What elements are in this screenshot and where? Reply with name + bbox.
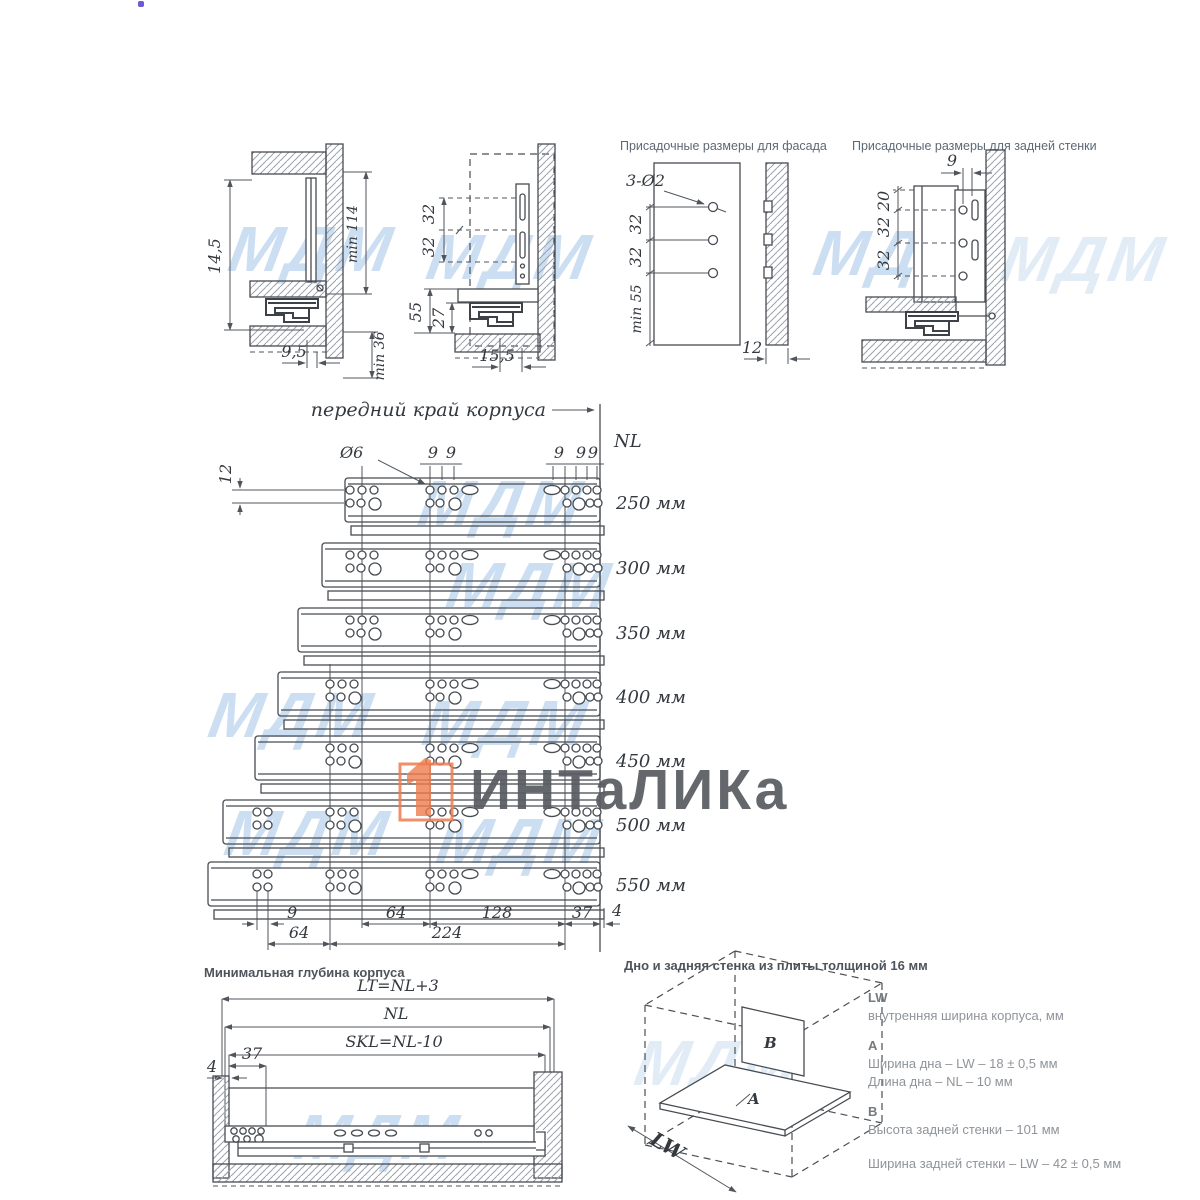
- dim-9: 9: [446, 443, 456, 462]
- dim-dia6: Ø6: [339, 443, 363, 462]
- marker-b: B: [763, 1034, 777, 1052]
- drawing-sheet: МДМ МДМ МДМ МДМ МДМ МДМ МДМ МДМ МДМ МДМ …: [0, 0, 1200, 1200]
- slide-row-350: 350 мм: [298, 608, 686, 665]
- dim-55: 55: [406, 302, 425, 322]
- dim-32: 32: [626, 214, 645, 234]
- dim-32: 32: [626, 247, 645, 267]
- slide-length-label: 550 мм: [616, 875, 686, 896]
- slide-length-diagram: передний край корпуса NL Ø6 9 9 9 9 9: [208, 399, 686, 952]
- dim-32: 32: [874, 217, 893, 237]
- slide-row-300: 300 мм: [322, 543, 686, 600]
- panel-facade-drilling: Присадочные размеры для фасада 3-Ø2 32 3…: [620, 139, 827, 364]
- dim-9: 9: [428, 443, 438, 462]
- slide-length-label: 350 мм: [616, 623, 686, 644]
- dim-37: 37: [242, 1044, 263, 1063]
- panel-title: Присадочные размеры для задней стенки: [852, 139, 1097, 153]
- note-line: Высота задней стенки – 101 мм: [868, 1122, 1060, 1137]
- dim-15-5: 15,5: [479, 346, 515, 365]
- dim-lt: LT=NL+3: [356, 976, 439, 995]
- dim-9: 9: [554, 443, 564, 462]
- dim-14-5: 14,5: [205, 238, 224, 274]
- slide-row-400: 400 мм: [278, 672, 686, 729]
- dim-9-5: 9,5: [281, 342, 306, 361]
- dim-9: 9: [576, 443, 586, 462]
- leader-3-d2: 3-Ø2: [626, 171, 665, 190]
- note-head-a: A: [868, 1038, 878, 1053]
- dim-32: 32: [419, 237, 438, 257]
- dim-nl: NL: [383, 1004, 409, 1023]
- dim-128: 128: [482, 903, 513, 922]
- dim-32: 32: [874, 250, 893, 270]
- slide-length-label: 400 мм: [615, 687, 686, 708]
- slide-row-250: 250 мм: [345, 478, 686, 535]
- dim-37: 37: [572, 903, 593, 922]
- panel-title: Присадочные размеры для фасада: [620, 139, 827, 153]
- dim-skl: SKL=NL-10: [345, 1032, 442, 1051]
- dim-min-36: min 36: [372, 331, 388, 380]
- dim-4: 4: [611, 901, 622, 920]
- logo-text: ИНТаЛИКа: [470, 752, 789, 828]
- panel-back-wall-drilling: Присадочные размеры для задней стенки 9: [852, 139, 1097, 368]
- panel-bottom-back-16mm: Дно и задняя стенка из плиты толщиной 16…: [624, 951, 1121, 1192]
- dim-12: 12: [742, 338, 762, 357]
- note-line: Ширина задней стенки – LW – 42 ± 0,5 мм: [868, 1156, 1121, 1171]
- marker-a: A: [746, 1090, 760, 1108]
- dim-9: 9: [287, 903, 297, 922]
- dim-min-114: min 114: [345, 205, 361, 263]
- dim-32: 32: [419, 204, 438, 224]
- panel-side-section-1: 14,5 min 114 9,5 min 36: [205, 144, 388, 381]
- nl-label: NL: [613, 431, 642, 452]
- note-line: внутренняя ширина корпуса, мм: [868, 1008, 1064, 1023]
- intalika-logo: ИНТаЛИКа: [398, 752, 789, 828]
- panel-min-depth: Минимальная глубина корпуса LT=NL+3 NL S…: [204, 965, 562, 1186]
- dim-20: 20: [874, 191, 893, 212]
- dim-64: 64: [386, 903, 406, 922]
- panel-side-section-2: 32 32 55 27 15,5: [406, 144, 555, 372]
- note-line: Ширина дна – LW – 18 ± 0,5 мм: [868, 1056, 1058, 1071]
- dim-min-55: min 55: [629, 284, 645, 333]
- dim-27: 27: [429, 307, 448, 329]
- slide-length-label: 250 мм: [615, 493, 686, 514]
- note-head-b: B: [868, 1104, 877, 1119]
- slide-length-label: 300 мм: [616, 558, 686, 579]
- dim-4: 4: [206, 1057, 217, 1076]
- technical-drawing: 14,5 min 114 9,5 min 36: [0, 0, 1200, 1200]
- dim-9: 9: [947, 151, 957, 170]
- dim-12: 12: [216, 464, 235, 484]
- note-line: Длина дна – NL – 10 мм: [868, 1074, 1013, 1089]
- dim-64: 64: [289, 923, 309, 942]
- note-head-lw: LW: [868, 990, 888, 1005]
- logo-one-icon: [398, 752, 456, 828]
- dim-224: 224: [431, 923, 463, 942]
- front-edge-label: передний край корпуса: [311, 399, 546, 421]
- dim-9: 9: [588, 443, 598, 462]
